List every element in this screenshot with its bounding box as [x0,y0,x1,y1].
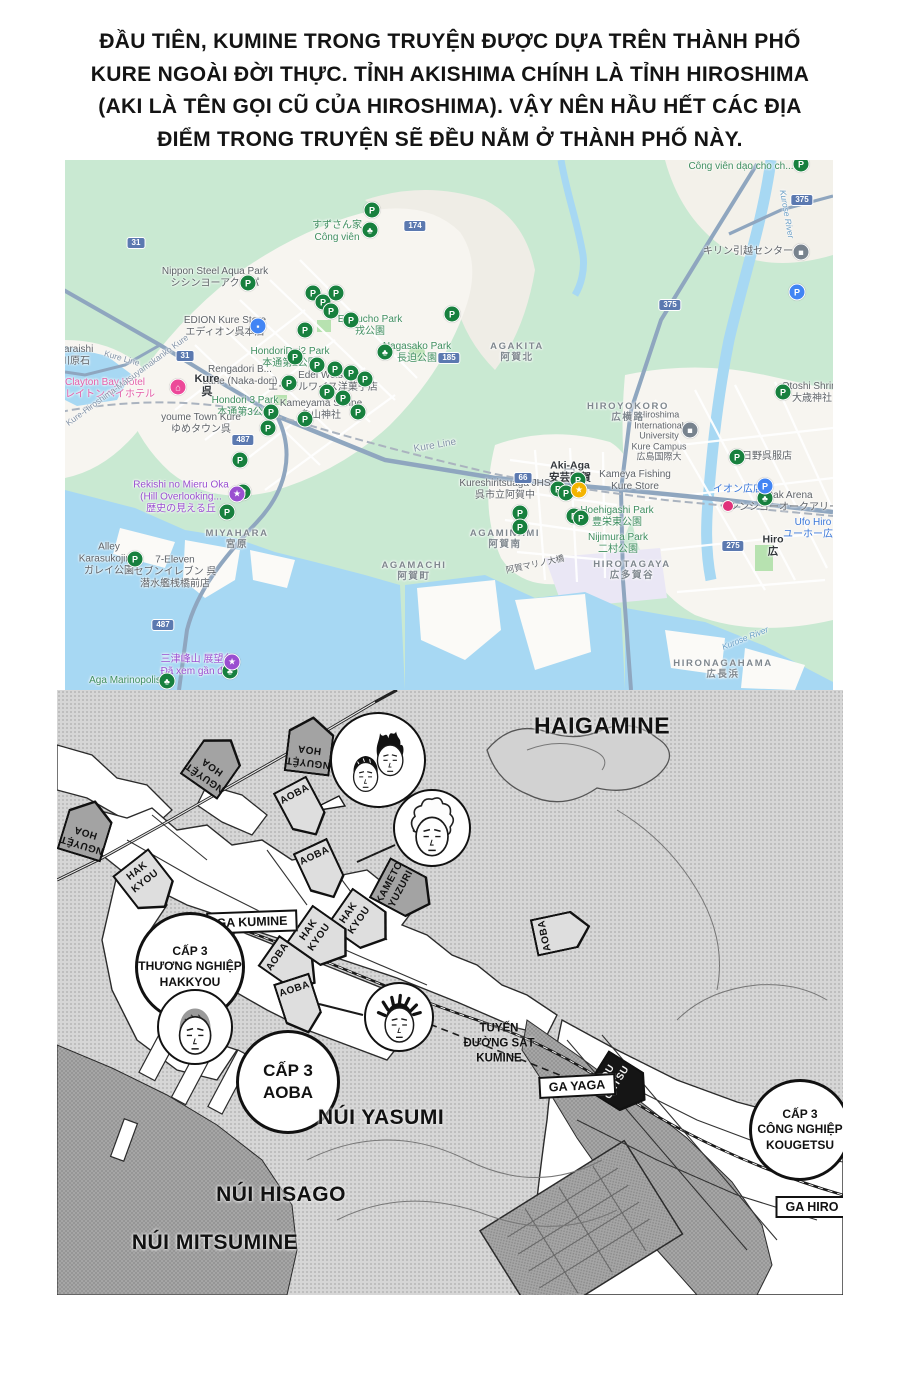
map-pin-school: ■ [682,422,699,439]
map-pin-star: ★ [571,482,588,499]
map-pin-p: P [573,510,590,527]
road-shield: 487 [151,619,174,631]
map-label: AGAMACHI阿賀町 [381,560,446,582]
map-pin-p: P [793,160,810,173]
map-pin-purple: ★ [229,486,246,503]
map-label: HIROTAGAYA広多賀谷 [593,559,670,581]
map-pin-p: P [309,357,326,374]
map-pin-p: P [343,312,360,329]
map-pin-p: P [219,504,236,521]
map-label: Công viên dạo cho ch... [688,161,793,173]
map-pin-p: P [240,275,257,292]
map-label: Kameya FishingKure Store [599,469,671,493]
map-pin-p: P [319,384,336,401]
territory-flag: AOBA [530,907,595,956]
territory-flag: AOBA [293,838,352,907]
map-label: Ufo Hiroユーホー広店 [783,517,833,541]
map-pin-tree: ♣ [362,222,379,239]
station-sign: GA HIRO [775,1196,843,1218]
map-pin-tree: ♣ [377,344,394,361]
territory-flag: HAKKYOU [112,848,184,922]
road-shield: 375 [790,194,813,206]
map-pin-lock: ▪ [250,318,267,335]
map-pin-mag [722,500,734,512]
character-portrait-buzz [157,989,233,1065]
railway-note: TUYẾNĐƯỜNG SẮTKUMINE [463,1022,534,1067]
territory-flag: NGUYỆTHOA [180,726,251,800]
territory-flag: NGUYỆTHOA [57,794,117,863]
map-pin-tree: ♣ [159,673,176,690]
map-pin-purple: ★ [224,654,241,671]
map-label: waraishi川原石 [65,344,93,368]
map-pin-p: P [127,551,144,568]
map-pin-p: P [350,404,367,421]
map-label: 日野呉服店 [742,451,792,463]
map-pin-p: P [357,371,374,388]
mountain-label: NÚI MITSUMINE [132,1231,298,1255]
map-pin-p: P [297,322,314,339]
map-label: MIYAHARA宮原 [205,528,268,550]
map-label: AGAMINAMI阿賀南 [470,528,540,550]
google-map-panel: Công viên dạo cho ch...すずさん家Công viênNip… [65,160,833,690]
map-pin-p: P [260,420,277,437]
map-label: キリン引越センター [703,246,793,258]
character-portrait-curly [393,789,471,867]
mountain-label: NÚI HISAGO [216,1183,346,1207]
map-label: HIROYOKORO広横路 [587,401,669,423]
map-label: Hiro広 [763,534,784,559]
manga-page: ĐẦU TIÊN, KUMINE TRONG TRUYỆN ĐƯỢC DỰA T… [0,0,900,1390]
manga-overlay: NGUYỆTHOANGUYỆTHOANGUYỆTHOAAOBAAOBAAOBAA… [57,690,843,1295]
intro-line: ĐẦU TIÊN, KUMINE TRONG TRUYỆN ĐƯỢC DỰA T… [0,26,900,59]
map-label: Oak Arenaシンシヨーオークアリーナ [729,490,833,514]
map-pin-p: P [327,361,344,378]
mountain-label: NÚI YASUMI [318,1106,444,1130]
intro-line: KURE NGOÀI ĐỜI THỰC. TỈNH AKISHIMA CHÍNH… [0,59,900,92]
map-pin-p: P [297,411,314,428]
territory-flag: NGUYỆTHOA [284,713,337,776]
map-label: Kurose River [720,624,769,652]
map-pin-gray: ■ [793,244,810,261]
intro-line: ĐIỂM TRONG TRUYỆN SẼ ĐỀU NẰM Ở THÀNH PHỐ… [0,124,900,157]
map-pin-hotel: ⌂ [170,379,187,396]
map-pin-bp: P [789,284,806,301]
intro-text: ĐẦU TIÊN, KUMINE TRONG TRUYỆN ĐƯỢC DỰA T… [0,26,900,156]
intro-line: (AKI LÀ TÊN GỌI CŨ CỦA HIROSHIMA). VẬY N… [0,91,900,124]
map-label: Kure Line [413,436,457,455]
map-label: Kure Line [103,348,141,368]
map-pin-p: P [775,384,792,401]
map-label: Rekishi no Mieru Oka(Hill Overlooking...… [133,479,229,514]
road-shield: 174 [403,220,426,232]
road-shield: 31 [127,237,146,249]
map-label: 阿賀マリノ大橋 [505,553,565,575]
map-label: Aga Marinopolis [89,675,161,687]
station-sign: GA YAGA [538,1073,616,1099]
map-pin-p: P [335,390,352,407]
school-circle: CẤP 3CÔNG NGHIỆPKOUGETSU [749,1079,843,1181]
map-label: Hoehigashi Park豊栄東公園 [580,505,653,529]
map-pin-p: P [364,202,381,219]
map-label: AGAKITA阿賀北 [490,341,544,363]
map-overlay: Công viên dạo cho ch...すずさん家Công viênNip… [65,160,833,690]
map-pin-p: P [281,375,298,392]
map-pin-p: P [232,452,249,469]
road-shield: 185 [437,352,460,364]
map-pin-p: P [323,303,340,320]
map-pin-p: P [444,306,461,323]
map-pin-p: P [729,449,746,466]
map-label: すずさん家Công viên [312,220,362,244]
road-shield: 275 [721,540,744,552]
map-pin-bp: P [757,478,774,495]
road-shield: 487 [231,434,254,446]
map-label: 7-Elevenセブンイレブン 呉潜水艦桟橋前店 [134,554,217,589]
map-pin-p: P [512,519,529,536]
road-shield: 66 [514,472,533,484]
character-portrait-dreads [364,982,434,1052]
territory-flag: AOBA [273,775,334,844]
manga-map-panel: NGUYỆTHOANGUYỆTHOANGUYỆTHOAAOBAAOBAAOBAA… [57,690,843,1295]
road-shield: 375 [658,299,681,311]
map-pin-p: P [328,285,345,302]
map-label: youme Town Kureゆめタウン呉 [161,412,241,436]
mountain-label: HAIGAMINE [534,713,670,740]
road-shield: 31 [176,350,195,362]
map-label: Kureshiritsuaga JHS呉市立阿賀中 [459,478,550,502]
map-label: HIRONAGAHAMA広長浜 [673,658,772,680]
map-label: Nijimura Park二村公園 [588,532,648,556]
map-pin-p: P [263,404,280,421]
map-pin-p: P [287,349,304,366]
